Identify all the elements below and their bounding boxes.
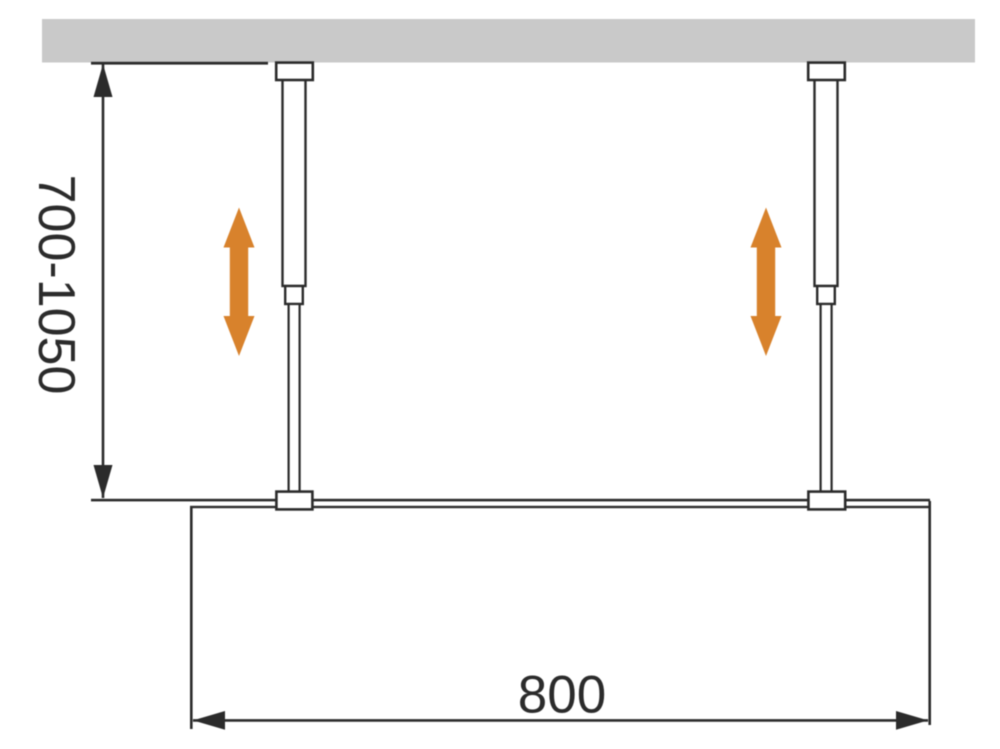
svg-text:700-1050: 700-1050 — [27, 175, 85, 395]
svg-text:800: 800 — [518, 666, 606, 725]
